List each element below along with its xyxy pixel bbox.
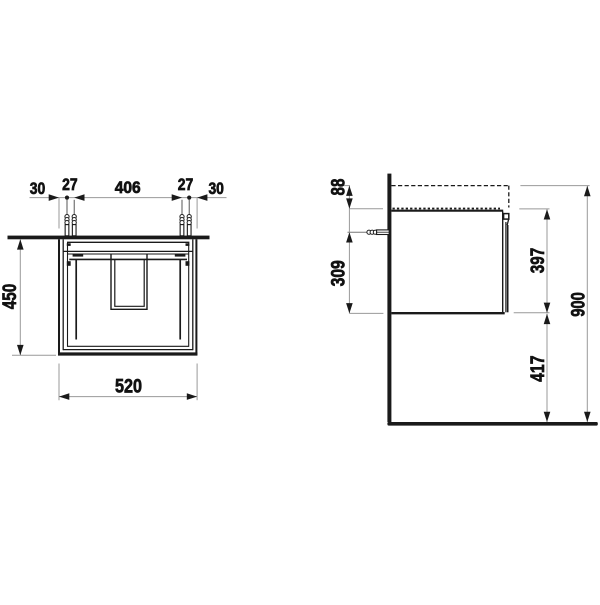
svg-text:520: 520 xyxy=(115,376,142,397)
svg-text:27: 27 xyxy=(178,176,194,194)
svg-text:406: 406 xyxy=(115,179,141,197)
svg-text:88: 88 xyxy=(328,179,349,196)
svg-text:30: 30 xyxy=(208,180,224,198)
svg-text:450: 450 xyxy=(0,284,21,309)
svg-text:27: 27 xyxy=(62,176,78,194)
svg-text:397: 397 xyxy=(528,248,549,273)
svg-text:309: 309 xyxy=(329,260,350,286)
svg-text:417: 417 xyxy=(528,356,549,382)
svg-text:30: 30 xyxy=(30,180,46,198)
svg-text:900: 900 xyxy=(568,292,589,317)
